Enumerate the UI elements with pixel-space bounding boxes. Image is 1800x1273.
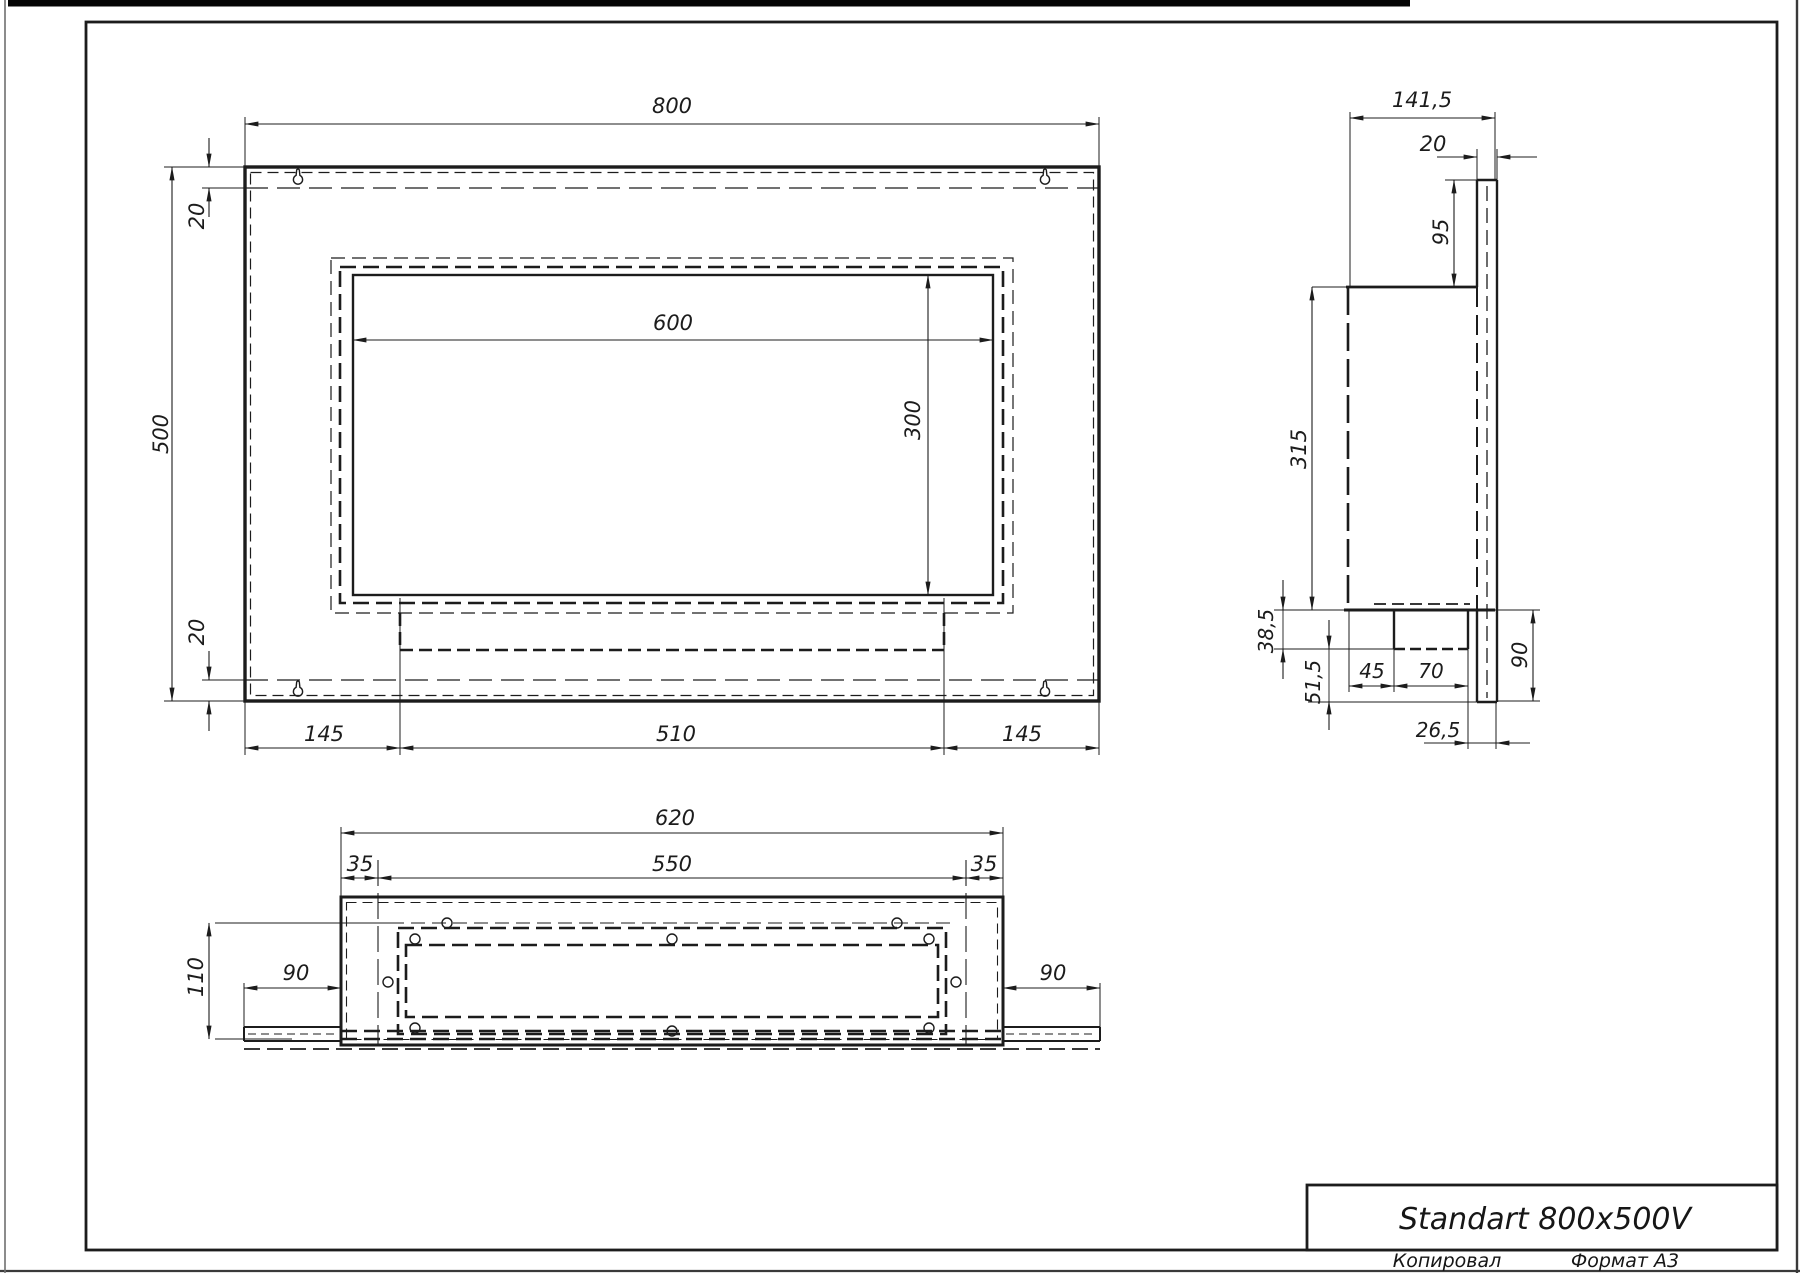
hole-icon (410, 934, 420, 944)
side-dim-body-height: 315 (1287, 429, 1311, 469)
hole-icon (667, 934, 677, 944)
bottom-dim-inset-left: 35 (347, 852, 374, 876)
drawing-title: Standart 800x500V (1399, 1202, 1694, 1237)
front-dim-opening-width: 600 (653, 311, 693, 335)
front-view: 800 500 20 20 600 300 145 510 145 (149, 94, 1099, 755)
drawing-sheet: 800 500 20 20 600 300 145 510 145 (0, 0, 1800, 1273)
front-hidden-backplate (251, 173, 1094, 696)
hole-icon (383, 977, 393, 987)
side-dim-plate-below: 90 (1508, 642, 1532, 669)
front-dim-opening-height: 300 (901, 400, 925, 440)
bottom-dim-opening-width: 550 (652, 852, 692, 876)
side-dim-tray-width: 70 (1418, 659, 1443, 683)
front-extension-lines (164, 117, 1099, 755)
front-dim-foot-left: 145 (304, 722, 344, 746)
hole-icon (924, 934, 934, 944)
front-dimension-lines (172, 124, 1099, 748)
page-edges (0, 0, 1800, 1273)
bottom-dim-inset-right: 35 (971, 852, 998, 876)
frame-border (86, 22, 1777, 1250)
bottom-dim-wing-left: 90 (283, 961, 310, 985)
front-dim-width: 800 (652, 94, 692, 118)
side-dim-tray-depth: 38,5 (1254, 609, 1278, 654)
bottom-view: 620 550 35 35 110 90 90 (184, 806, 1100, 1049)
technical-drawing: 800 500 20 20 600 300 145 510 145 (0, 0, 1800, 1273)
mounting-slots (293, 169, 1049, 696)
side-extension-lines (1274, 112, 1540, 749)
footer-format-label: Формат А3 (1571, 1250, 1679, 1272)
side-tray (1394, 610, 1468, 649)
front-dim-height: 500 (149, 414, 173, 454)
bottom-box-outline (341, 897, 1003, 1045)
side-wall-plate (1477, 180, 1497, 702)
front-dim-foot-right: 145 (1002, 722, 1042, 746)
side-dim-tray-to-plate: 26,5 (1416, 718, 1461, 742)
front-outer-frame (245, 167, 1099, 701)
bottom-dim-box-width: 620 (655, 806, 695, 830)
side-dim-plate-above: 95 (1429, 219, 1453, 246)
bottom-dim-wing-right: 90 (1040, 961, 1067, 985)
front-tray-hidden (400, 613, 944, 650)
drawing-frame (86, 22, 1777, 1250)
keyhole-slot-icon (1040, 681, 1049, 696)
side-dim-tray-setback: 45 (1359, 659, 1384, 683)
keyhole-slot-icon (1040, 169, 1049, 184)
side-dim-depth: 141,5 (1392, 88, 1452, 112)
keyhole-slot-icon (293, 681, 302, 696)
side-view: 141,5 20 95 315 38,5 51,5 45 70 26,5 90 (1254, 88, 1540, 749)
front-dim-tray-width: 510 (656, 722, 696, 746)
scan-shadow-top (8, 0, 1410, 7)
side-dim-below-tray: 51,5 (1301, 660, 1325, 705)
bottom-firebox-inner-hidden (406, 945, 938, 1017)
footer-copied-label: Копировал (1393, 1250, 1502, 1272)
hole-icon (951, 977, 961, 987)
front-dim-flange-top: 20 (185, 203, 209, 230)
title-block: Standart 800x500V Копировал Формат А3 (1307, 1185, 1777, 1272)
keyhole-slot-icon (293, 169, 302, 184)
front-dim-flange-bottom: 20 (185, 619, 209, 646)
bottom-dim-depth: 110 (184, 957, 208, 997)
side-dim-plate-thickness: 20 (1420, 132, 1447, 156)
